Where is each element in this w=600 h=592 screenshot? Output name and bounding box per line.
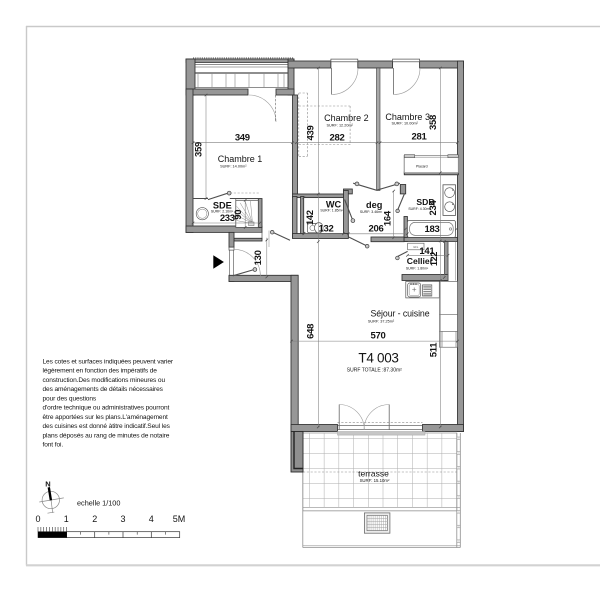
svg-text:164: 164: [383, 210, 394, 226]
svg-text:SURF TOTALE :87.30m²: SURF TOTALE :87.30m²: [347, 368, 402, 374]
svg-text:d'ordre technique ou administr: d'ordre technique ou administratives pou…: [43, 405, 170, 412]
svg-text:pour des questions: pour des questions: [43, 395, 97, 402]
svg-text:0: 0: [35, 514, 40, 524]
svg-text:SURF: 10.00m²: SURF: 10.00m²: [392, 122, 419, 126]
svg-text:plans déposés au rang de minut: plans déposés au rang de minutes de nota…: [43, 432, 170, 439]
svg-text:648: 648: [305, 324, 316, 339]
svg-text:Placard: Placard: [416, 164, 428, 168]
svg-text:SDB: SDB: [416, 197, 434, 207]
svg-text:2: 2: [92, 514, 97, 524]
svg-text:Séjour - cuisine: Séjour - cuisine: [370, 308, 429, 318]
svg-text:Cellier: Cellier: [407, 256, 434, 266]
svg-text:90: 90: [233, 210, 244, 220]
svg-text:SURF: 1.85m²: SURF: 1.85m²: [320, 209, 343, 213]
svg-text:T4 003: T4 003: [358, 351, 398, 366]
svg-text:130: 130: [253, 250, 264, 265]
svg-text:4: 4: [149, 514, 154, 524]
svg-text:SURF: 3.46m²: SURF: 3.46m²: [360, 210, 383, 214]
svg-text:SURF: 14.00m²: SURF: 14.00m²: [220, 164, 247, 168]
svg-text:281: 281: [412, 132, 428, 143]
svg-text:SURF: 37.25m²: SURF: 37.25m²: [368, 320, 395, 324]
svg-text:des aménagements de détails né: des aménagements de détails nécessaires: [43, 386, 164, 393]
svg-text:GFL: GFL: [413, 245, 419, 249]
svg-text:SURF: 2.16m²: SURF: 2.16m²: [211, 210, 234, 214]
svg-text:5M: 5M: [173, 514, 186, 524]
svg-text:3: 3: [120, 514, 125, 524]
svg-text:des cuisines est donné àtitre: des cuisines est donné àtitre indicatif.…: [43, 423, 171, 430]
svg-text:SURF: 4.30m²: SURF: 4.30m²: [408, 207, 431, 211]
svg-text:1: 1: [64, 514, 69, 524]
svg-text:Les cotes et surfaces indiquée: Les cotes et surfaces indiquées peuvent …: [43, 358, 174, 365]
svg-text:construction.Des modifications: construction.Des modifications mineures …: [43, 377, 166, 384]
svg-text:Chambre 3: Chambre 3: [385, 112, 430, 122]
svg-text:206: 206: [369, 224, 384, 235]
svg-text:142: 142: [305, 210, 316, 225]
svg-text:font foi.: font foi.: [43, 442, 64, 449]
svg-text:359: 359: [194, 142, 205, 157]
svg-text:Chambre 1: Chambre 1: [218, 154, 263, 164]
svg-text:être apportées sur les plans.L: être apportées sur les plans.L'aménageme…: [43, 414, 169, 421]
svg-text:132: 132: [319, 224, 334, 235]
svg-text:SURF: 15.10m²: SURF: 15.10m²: [360, 478, 390, 483]
svg-text:282: 282: [330, 133, 345, 144]
svg-text:349: 349: [235, 133, 250, 144]
svg-text:SURF: 12.20m²: SURF: 12.20m²: [327, 123, 354, 127]
svg-text:439: 439: [306, 126, 317, 141]
svg-text:echelle 1/100: echelle 1/100: [77, 499, 120, 508]
svg-text:deg: deg: [366, 200, 382, 210]
svg-text:légèrement en fonction des imp: légèrement en fonction des impératifs de: [43, 368, 158, 375]
svg-text:SURF: 1.80m²: SURF: 1.80m²: [406, 266, 429, 270]
svg-text:570: 570: [371, 330, 386, 341]
svg-text:183: 183: [425, 224, 440, 235]
svg-text:511: 511: [429, 342, 440, 357]
svg-text:Chambre 2: Chambre 2: [324, 113, 369, 123]
